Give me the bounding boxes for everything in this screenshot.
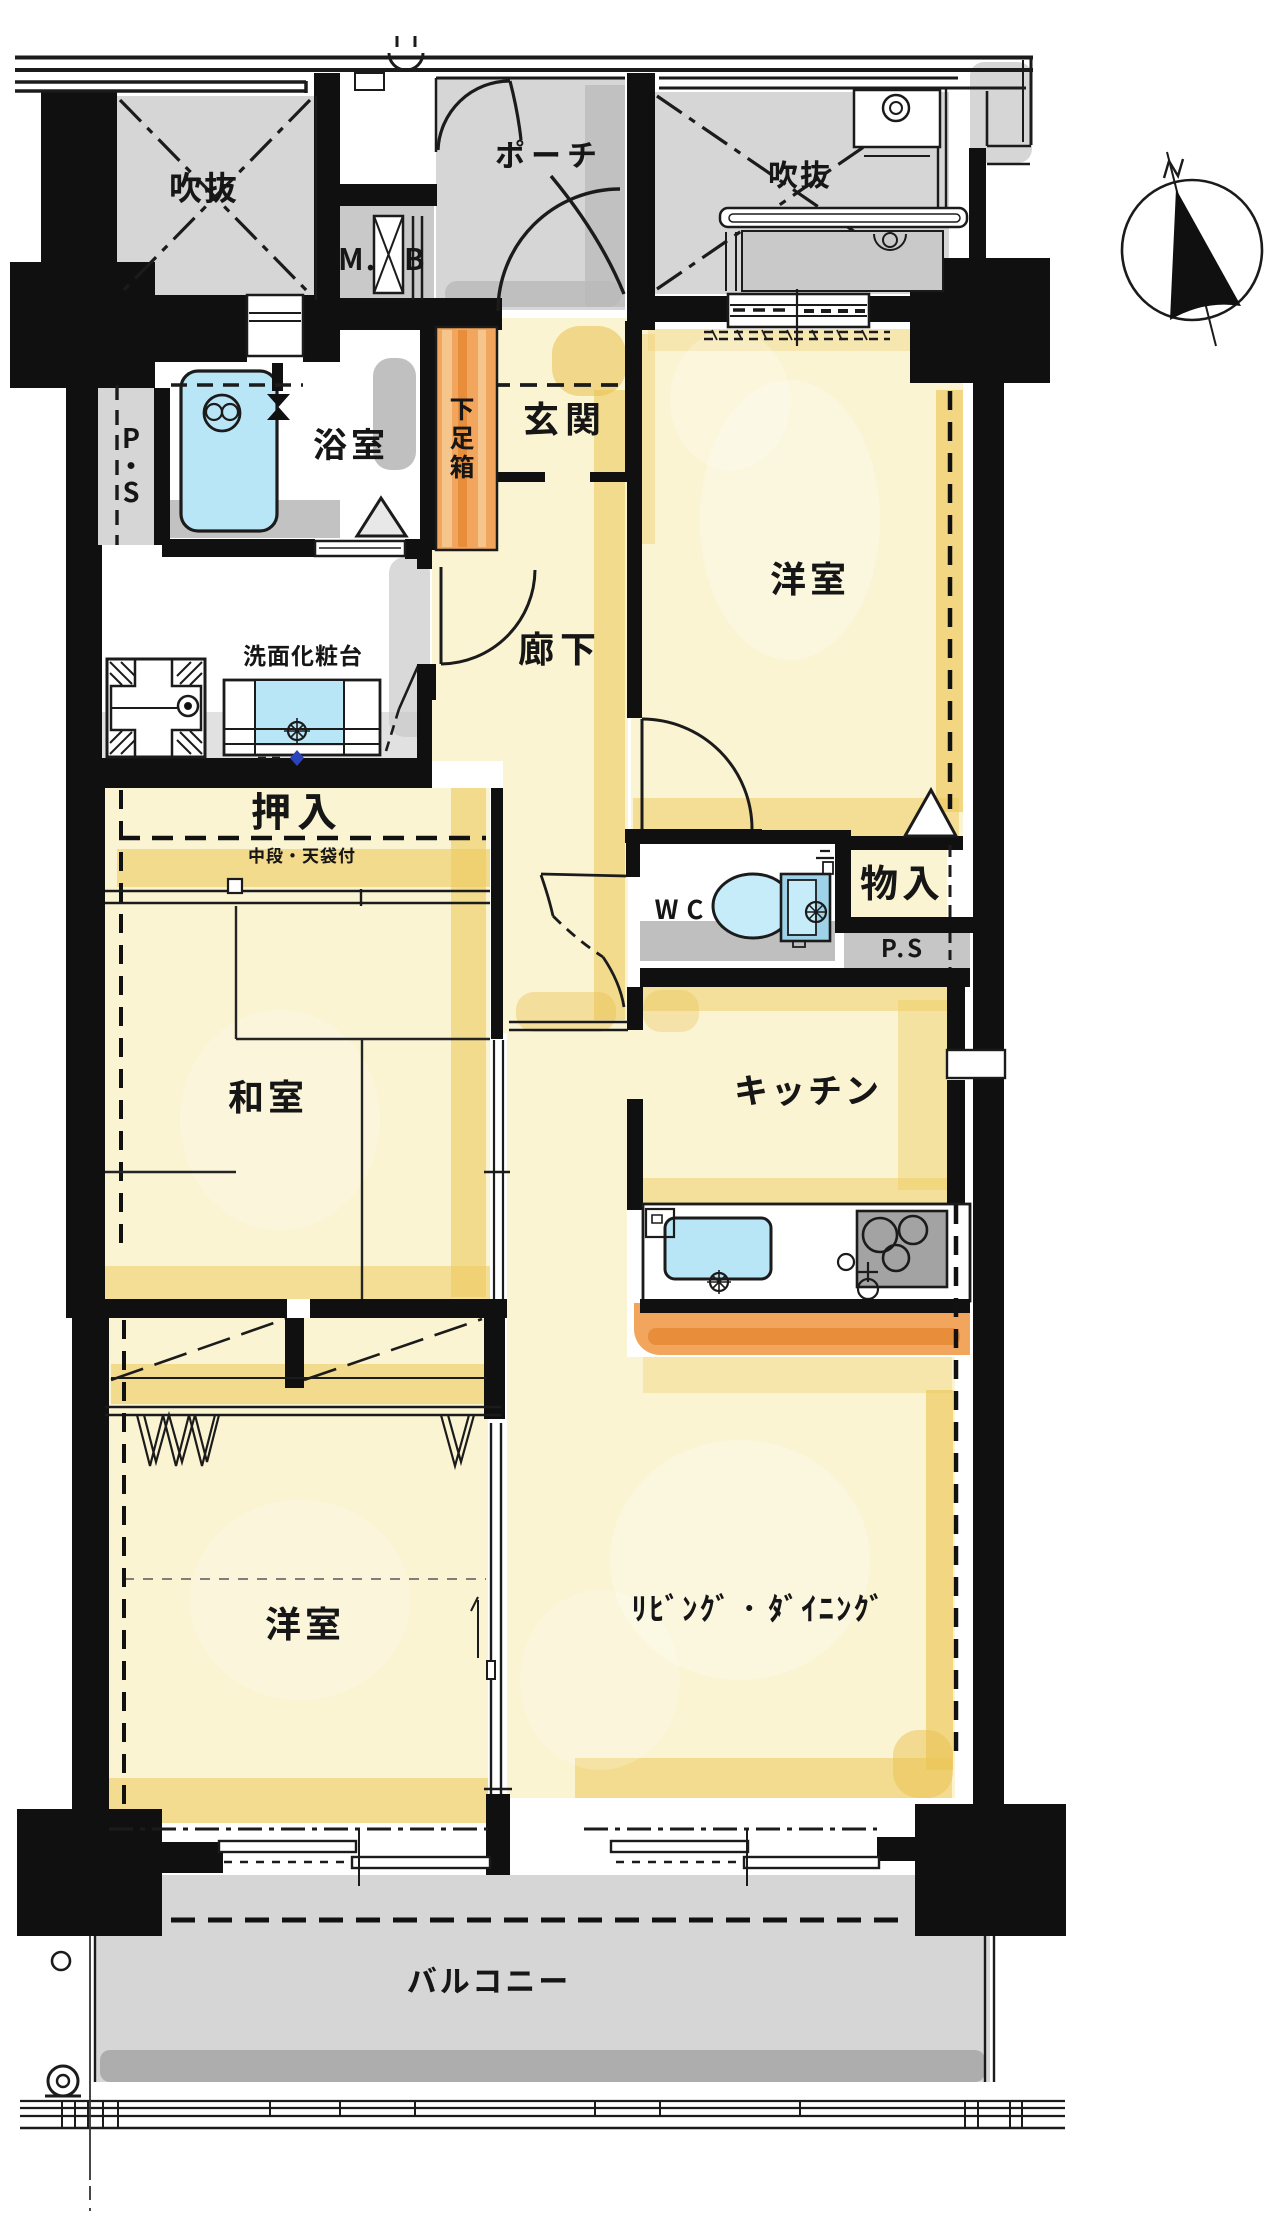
svg-text:キッチン: キッチン xyxy=(734,1064,882,1113)
svg-text:P.S: P.S xyxy=(881,929,925,964)
svg-text:物入: 物入 xyxy=(860,853,944,908)
svg-text:バルコニー: バルコニー xyxy=(407,1957,571,2001)
svg-text:ポーチ: ポーチ xyxy=(495,131,603,175)
svg-text:洋室: 洋室 xyxy=(265,1596,345,1648)
svg-text:玄関: 玄関 xyxy=(523,391,607,443)
svg-text:廊下: 廊下 xyxy=(518,621,602,673)
svg-text:中段・天袋付: 中段・天袋付 xyxy=(248,842,356,867)
svg-text:WC: WC xyxy=(655,890,712,927)
svg-text:浴室: 浴室 xyxy=(313,418,389,467)
svg-text:下足箱: 下足箱 xyxy=(449,390,474,484)
svg-text:和室: 和室 xyxy=(228,1069,308,1121)
svg-text:洋室: 洋室 xyxy=(770,551,850,603)
svg-text:洗面化粧台: 洗面化粧台 xyxy=(243,637,363,671)
svg-text:吹抜: 吹抜 xyxy=(768,151,832,195)
svg-text:吹抜: 吹抜 xyxy=(169,162,239,210)
svg-text:押入: 押入 xyxy=(251,780,343,838)
svg-text:M.: M. xyxy=(338,235,375,279)
svg-text:ﾘﾋﾞﾝｸﾞ ･ ﾀﾞｲﾆﾝｸﾞ: ﾘﾋﾞﾝｸﾞ ･ ﾀﾞｲﾆﾝｸﾞ xyxy=(631,1584,886,1629)
svg-text:B: B xyxy=(404,235,424,279)
